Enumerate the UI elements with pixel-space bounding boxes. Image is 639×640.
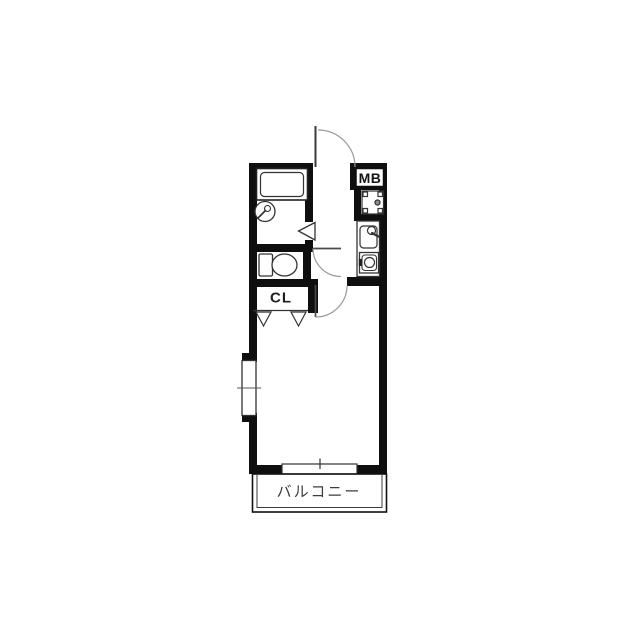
- bottom-wall-left: [249, 465, 282, 474]
- kitchenette: [357, 221, 380, 277]
- floorplan-drawing: [0, 0, 639, 640]
- toilet-right-wall: [303, 252, 311, 279]
- closet-bifold-door-icon: [256, 312, 271, 326]
- left-wall-lower: [249, 413, 257, 474]
- closet: [253, 311, 308, 327]
- toilet-bowl: [272, 254, 297, 276]
- closet-label: CL: [270, 290, 292, 307]
- pan-corner-icon: [378, 192, 383, 197]
- entrance-door-arc: [318, 130, 355, 167]
- left-window: [237, 361, 261, 416]
- bottom-wall-right: [357, 465, 387, 474]
- main-room-door: [316, 285, 348, 317]
- balcony-label: バルコニー: [277, 481, 362, 502]
- main-room-top-wall-right: [347, 277, 387, 286]
- bathroom-bottom-wall: [249, 244, 313, 252]
- pan-corner-icon: [363, 192, 368, 197]
- main-room-door-arc: [316, 286, 348, 318]
- pan-drain-icon: [375, 200, 380, 205]
- toilet-door-arc: [313, 249, 341, 277]
- washing-machine-pan: [362, 191, 384, 214]
- floorplan-image: MB CL バルコニー: [0, 0, 639, 640]
- bathtub-inner: [261, 173, 304, 197]
- washing-pan-bottom-wall: [354, 214, 387, 221]
- stove-knob-icon: [359, 259, 362, 266]
- toilet-door: [313, 249, 341, 277]
- entrance-door: [316, 126, 356, 167]
- closet-bifold-door-icon: [291, 312, 306, 326]
- pan-corner-icon: [378, 209, 383, 214]
- closet-right-wall: [308, 279, 318, 313]
- bathroom-door-icon: [299, 223, 316, 241]
- pan-corner-icon: [363, 209, 368, 214]
- toilet: [259, 254, 297, 276]
- balcony-sliding-window: [282, 459, 357, 475]
- toilet-bottom-wall: [249, 279, 318, 287]
- toilet-tank: [259, 254, 273, 276]
- meter-box-label: MB: [359, 170, 382, 186]
